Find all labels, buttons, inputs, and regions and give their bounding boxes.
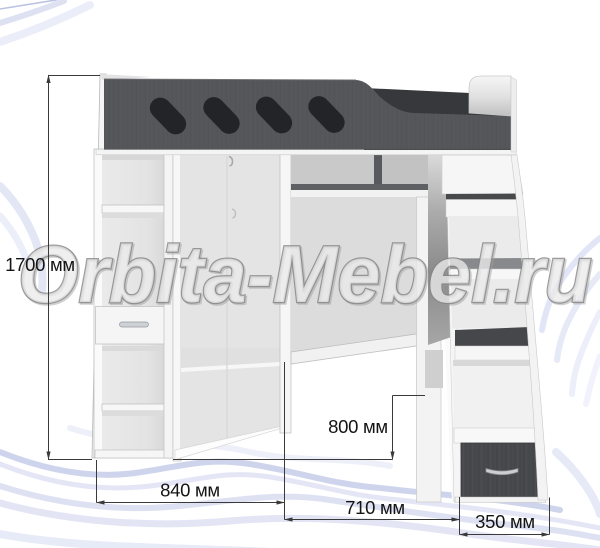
svg-text:Orbita-Mebel.ru: Orbita-Mebel.ru — [18, 230, 592, 320]
svg-text:710 мм: 710 мм — [345, 497, 405, 518]
svg-text:350 мм: 350 мм — [475, 511, 535, 532]
svg-text:840 мм: 840 мм — [160, 480, 220, 501]
svg-text:1700 мм: 1700 мм — [5, 254, 75, 275]
svg-text:800 мм: 800 мм — [328, 416, 388, 437]
